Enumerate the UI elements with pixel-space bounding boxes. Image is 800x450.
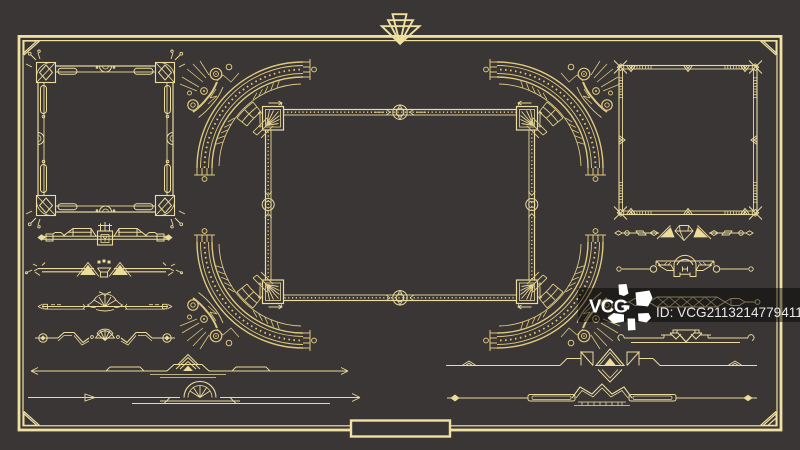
- svg-text:VCG: VCG: [589, 296, 628, 317]
- svg-text:ID: VCG2113214779411: ID: VCG2113214779411: [656, 305, 800, 320]
